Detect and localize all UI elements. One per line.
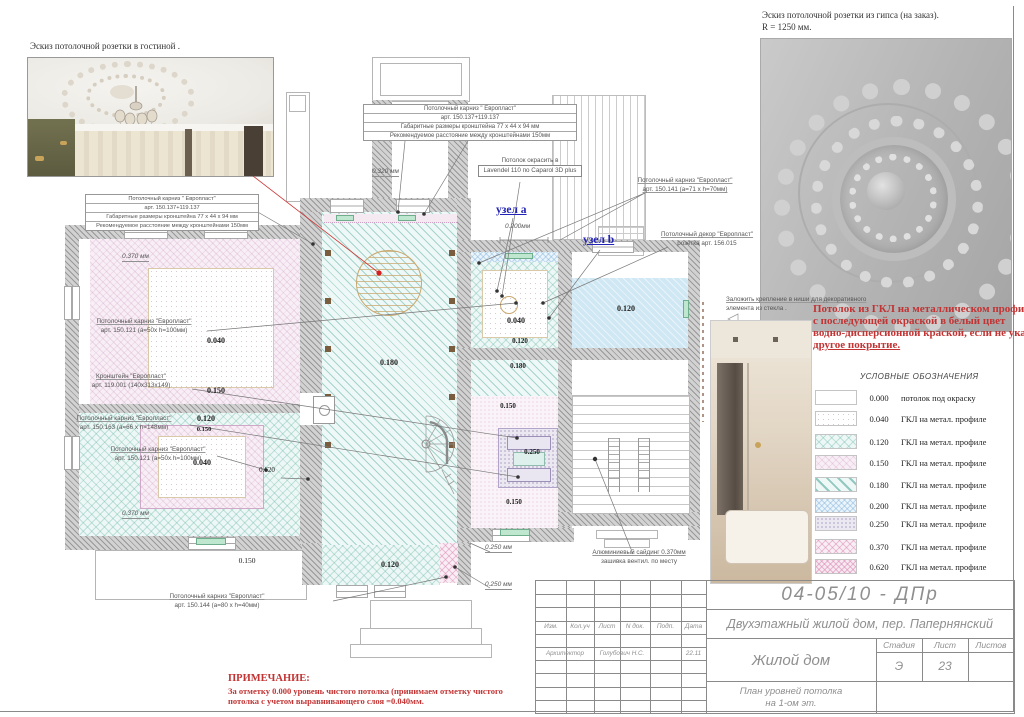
legend-label: ГКЛ на метал. профиле [901, 458, 986, 468]
legend-label: ГКЛ на метал. профиле [901, 542, 986, 552]
spec-line: Габаритные размеры кронштейна 77 х 44 х … [364, 123, 576, 132]
tb-header-podp: Подп. [650, 623, 681, 630]
legend-value: 0.370 [857, 542, 901, 552]
tb-sheet-title-1: План уровней потолка [706, 686, 876, 697]
bath-tub [725, 510, 809, 564]
terrace-rail-2 [638, 438, 650, 492]
vent-mark [196, 538, 226, 545]
wall-segment [558, 252, 572, 348]
terrace-area [572, 395, 690, 514]
legend-value: 0.040 [857, 414, 901, 424]
tb-sheets-header: Листов [968, 640, 1014, 650]
cornice-spec-box-left: Потолочный карниз " Европласт" арт. 150.… [85, 194, 259, 231]
legend-row: 0.250 ГКЛ на метал. профиле [815, 516, 1015, 531]
note-block: ПРИМЕЧАНИЕ: За отметку 0.000 уровень чис… [228, 673, 503, 706]
callout-cornice-121a: Потолочный карниз "Европласт" арт. 150.1… [78, 317, 210, 336]
vent-circle [319, 405, 330, 416]
callout-line: Потолочный карниз "Европласт" [58, 414, 190, 423]
legend-swatch-180 [815, 477, 857, 492]
spiral-stair-icon [396, 406, 460, 504]
tb-line [876, 652, 1014, 653]
callout-line: арт. 150.163 (а=66 х h=148мм) [58, 423, 190, 432]
level-label: 0.150 [225, 556, 269, 565]
terrace-step-2 [604, 539, 650, 548]
tb-line [536, 621, 706, 622]
paint-note: Потолок окрасить в Lavendel 110 по Capar… [478, 156, 582, 177]
legend-value: 0.180 [857, 480, 901, 490]
callout-line: Алюминиевый сайдинг 0.370мм [578, 548, 700, 557]
bath-ceiling [711, 321, 811, 358]
callout-line: розетка арт. 156.015 [640, 239, 774, 248]
node-b-label: узел b [583, 234, 614, 246]
tb-line [536, 673, 706, 674]
legend-label: ГКЛ на метал. профиле [901, 480, 986, 490]
note-line: потолка с учетом выравнивающего слоя =0.… [228, 696, 503, 706]
vent-mark [683, 300, 689, 318]
bath-glass-edge [747, 363, 749, 515]
window-opening [374, 585, 406, 598]
tb-stage-header: Стадия [876, 640, 922, 650]
callout-cornice-144: Потолочный карниз "Европласт" арт. 150.1… [148, 592, 286, 611]
cornice-spec-box-top: Потолочный карниз " Европласт" арт. 150.… [363, 104, 577, 141]
bottom-steps-1 [370, 600, 472, 630]
wall-segment [457, 348, 700, 360]
legend-label: потолок под окраску [901, 393, 976, 403]
spec-line: Потолочный карниз " Европласт" [364, 105, 576, 114]
small-rosette-circle [500, 296, 518, 314]
dim-label: 0.200мм [505, 223, 530, 231]
legend-value: 0.200 [857, 501, 901, 511]
callout-line: арт. 150.121 (а=50х h=100мм) [78, 326, 210, 335]
legend-row: 0.000 потолок под окраску [815, 390, 1015, 405]
callout-line: Кронштейн "Европласт" [70, 372, 192, 381]
tb-header-data: Дата [681, 623, 706, 630]
callout-line: Потолочный карниз "Европласт" [92, 445, 224, 454]
level-label: 0.150 [196, 386, 236, 395]
level-label: 0.040 [196, 336, 236, 345]
red-note-line: с последующей окраской в белый цвет [813, 315, 1024, 327]
note-title: ПРИМЕЧАНИЕ: [228, 673, 503, 684]
level-label: 0.120 [606, 304, 646, 313]
level-label: 0.040 [182, 458, 222, 467]
note-line: За отметку 0.000 уровень чистого потолка… [228, 686, 503, 696]
spec-line: арт. 150.137+119.137 [364, 114, 576, 123]
legend-swatch-370 [815, 539, 857, 554]
callout-line: зашивка вентил. по месту [578, 557, 700, 566]
wall-segment [79, 404, 300, 413]
level-label: 0.040 [496, 316, 536, 325]
pier-370 [440, 543, 458, 583]
callout-bracket-119: Кронштейн "Европласт" арт. 119.001 (140х… [70, 372, 192, 391]
callout-line: арт. 150.144 (а=80 х h=40мм) [148, 601, 286, 610]
tb-sheet-title-2: на 1-ом эт. [706, 698, 876, 709]
legend-label: ГКЛ на метал. профиле [901, 519, 986, 529]
red-note-line: водно-дисперсионной краской, если не ука… [813, 327, 1024, 339]
legend-title: УСЛОВНЫЕ ОБОЗНАЧЕНИЯ [860, 372, 979, 381]
vent-mark [398, 215, 416, 221]
legend-swatch-250 [815, 516, 857, 531]
tb-header-list: Лист [594, 623, 620, 630]
callout-line: Потолочный карниз "Европласт" [78, 317, 210, 326]
tb-architect-name: Голубович Н.С. [594, 650, 650, 657]
tb-project-name: Двухэтажный жилой дом, пер. Папернянский [706, 617, 1014, 631]
wall-segment [457, 545, 471, 585]
wall-segment [300, 212, 322, 545]
paint-note-line1: Потолок окрасить в [478, 156, 582, 165]
tb-doc-number: 04-05/10 - ДПр [706, 584, 1014, 606]
spec-line: Рекомендуемое расстояние между кронштейн… [364, 132, 576, 140]
legend-value: 0.150 [857, 458, 901, 468]
gkl-red-note: Потолок из ГКЛ на металлическом профиле … [813, 303, 1024, 351]
tb-line [536, 594, 706, 595]
top-bay-inner-outline [380, 63, 462, 96]
callout-rosette-156: Потолочный декор "Европласт" розетка арт… [640, 230, 774, 249]
wall-segment [558, 360, 572, 528]
tb-line [536, 700, 706, 701]
glass-chain-decor [702, 302, 704, 422]
legend-row: 0.200 ГКЛ на метал. профиле [815, 498, 1015, 513]
legend-row: 0.120 ГКЛ на метал. профиле [815, 434, 1015, 449]
dim-label: 0.250 мм [485, 581, 512, 590]
tb-stage-value: Э [876, 659, 922, 673]
window-opening [64, 436, 80, 470]
level-label: 0.180 [498, 362, 538, 370]
terrace-rail-1 [608, 438, 620, 492]
bottom-steps-3 [350, 644, 492, 658]
callout-siding: Алюминиевый сайдинг 0.370мм зашивка вент… [578, 548, 700, 567]
tb-line [536, 607, 706, 608]
node-a-label: узел a [496, 204, 527, 216]
tb-line [536, 647, 706, 648]
callout-cornice-163: Потолочный карниз "Европласт" арт. 150.1… [58, 414, 190, 433]
red-note-line: Потолок из ГКЛ на металлическом профиле [813, 303, 1024, 315]
photo-green-wall [28, 119, 75, 176]
dim-label: 0.370 мм [122, 253, 149, 262]
legend-value: 0.120 [857, 437, 901, 447]
tb-line [536, 634, 706, 635]
ceiling-rosette-circle [356, 250, 422, 316]
level-label: 0.120 [500, 337, 540, 345]
photo-sconce [60, 141, 67, 145]
wall-segment [302, 543, 322, 585]
legend-value: 0.000 [857, 393, 901, 403]
room-far-right-120 [572, 278, 688, 348]
legend-swatch-000 [815, 390, 857, 405]
rosette-center-boss [867, 172, 905, 210]
vent-mark [505, 253, 533, 259]
legend-label: ГКЛ на метал. профиле [901, 414, 986, 424]
level-label: 0.120 [362, 560, 418, 569]
tb-line [536, 660, 706, 661]
legend-value: 0.620 [857, 562, 901, 572]
dim-label: 0.250 мм [485, 544, 512, 553]
tb-line [536, 687, 706, 688]
wall-segment [300, 198, 470, 212]
callout-line: арт. 119.001 (140х313х149) [70, 381, 192, 390]
bath-shower-column [717, 363, 743, 515]
spec-line: Рекомендуемое расстояние между кронштейн… [86, 222, 258, 230]
tb-line [706, 609, 1014, 610]
legend-swatch-120 [815, 434, 857, 449]
title-block: Изм. Кол.уч Лист N док. Подп. Дата Архит… [535, 580, 1015, 714]
bath-spotlight [773, 337, 778, 342]
legend-row: 0.150 ГКЛ на метал. профиле [815, 455, 1015, 470]
plaster-caption-2: R = 1250 мм. [762, 22, 811, 32]
drawing-sheet: Эскиз потолочной розетки в гостиной . Эс… [0, 0, 1024, 717]
level-label: 0.120 [186, 414, 226, 423]
bath-spotlight [733, 337, 738, 342]
paint-note-line2: Lavendel 110 по Caparol 3D plus [478, 165, 582, 176]
vent-mark [336, 215, 354, 221]
tb-line [706, 681, 1014, 682]
legend-label: ГКЛ на метал. профиле [901, 437, 986, 447]
legend-swatch-150 [815, 455, 857, 470]
left-column-cap [289, 95, 306, 112]
level-label: 0.250 [510, 448, 554, 456]
window-opening [336, 585, 368, 598]
vent-box [313, 396, 335, 424]
tb-role: Архитектор [536, 650, 594, 657]
tb-sheet-header: Лист [922, 640, 968, 650]
legend-swatch-620 [815, 559, 857, 574]
spec-line: Габаритные размеры кронштейна 77 х 44 х … [86, 213, 258, 222]
callout-line: Потолочный декор "Европласт" [640, 230, 774, 239]
bath-fixture [755, 442, 761, 448]
dim-label: 0.370 мм [122, 510, 149, 519]
photo-window [244, 126, 264, 176]
legend-label: ГКЛ на метал. профиле [901, 501, 986, 511]
tb-header-ndok: N док. [620, 623, 650, 630]
window-opening [396, 199, 430, 213]
plaster-caption-1: Эскиз потолочной розетки из гипса (на за… [762, 10, 939, 20]
photo-curtain-gap [185, 129, 192, 176]
window-opening [64, 286, 80, 320]
tb-date: 22.11 [681, 650, 706, 657]
legend-row: 0.620 ГКЛ на метал. профиле [815, 559, 1015, 574]
callout-line: Потолочный карниз "Европласт" [148, 592, 286, 601]
tb-sheet-value: 23 [922, 659, 968, 673]
living-photo-caption: Эскиз потолочной розетки в гостиной . [30, 41, 180, 51]
vent-mark [500, 529, 530, 536]
legend-swatch-200 [815, 498, 857, 513]
tb-header-izm: Изм. [536, 623, 566, 630]
window-opening [330, 199, 364, 213]
dim-label: 0.320 мм [372, 168, 399, 177]
legend-label: ГКЛ на метал. профиле [901, 562, 986, 572]
level-label: 0.150 [488, 402, 528, 410]
legend-row: 0.180 ГКЛ на метал. профиле [815, 477, 1015, 492]
photo-sconce-2 [35, 156, 44, 161]
terrace-step-1 [596, 530, 658, 539]
spec-line: Потолочный карниз " Европласт" [86, 195, 258, 204]
level-label: 0.150 [494, 498, 534, 506]
plaster-rosette-photo [760, 38, 1012, 332]
legend-value: 0.250 [857, 519, 901, 529]
legend-row: 0.370 ГКЛ на метал. профиле [815, 539, 1015, 554]
level-label: 0.620 [250, 466, 284, 474]
level-label: 0.180 [364, 358, 414, 367]
red-note-line: другое покрытие. [813, 339, 1024, 351]
ceiling-light-markers-left [325, 250, 331, 490]
callout-line: арт. 150.141 (а=71 х h=70мм) [610, 185, 760, 194]
callout-line: Потолочный карниз "Европласт" [610, 176, 760, 185]
level-label: 0.150 [184, 426, 224, 433]
tb-header-koluch: Кол.уч [566, 623, 594, 630]
wall-segment [558, 512, 700, 526]
tb-object-name: Жилой дом [706, 652, 876, 669]
bathroom-photo [710, 320, 812, 584]
legend-swatch-040 [815, 411, 857, 426]
living-room-photo [27, 57, 274, 177]
callout-cornice-141: Потолочный карниз "Европласт" арт. 150.1… [610, 176, 760, 195]
legend-row: 0.040 ГКЛ на метал. профиле [815, 411, 1015, 426]
niche-detail-bar [507, 468, 551, 482]
room-right-bottom-250 [498, 428, 558, 488]
spec-line: арт. 150.137+119.137 [86, 204, 258, 213]
